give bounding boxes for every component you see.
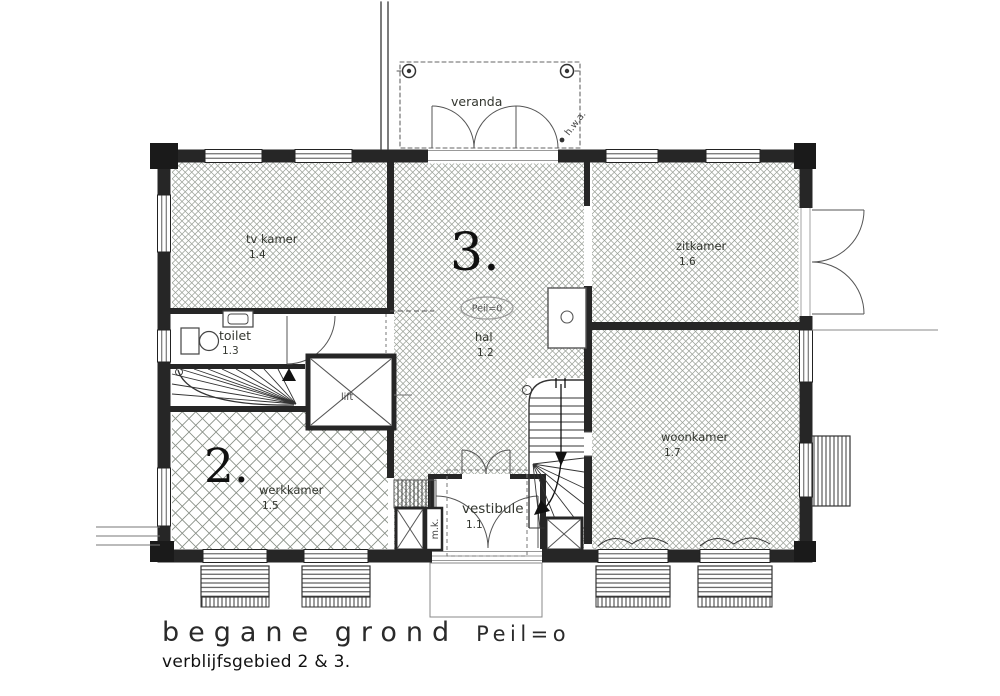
shaft-closet-left	[396, 508, 424, 550]
svg-text:1.7: 1.7	[664, 447, 681, 459]
window	[295, 150, 352, 163]
window	[800, 330, 813, 382]
entrance-stoop	[430, 563, 542, 617]
window	[598, 550, 668, 563]
window	[304, 550, 368, 563]
window	[158, 330, 171, 362]
flue-circle	[561, 311, 573, 323]
svg-text:1.2: 1.2	[477, 347, 494, 359]
peil-label: Peil=0	[472, 304, 503, 315]
exterior-chimney	[812, 436, 850, 506]
svg-text:1.1: 1.1	[466, 519, 483, 531]
veranda-label: veranda	[451, 94, 502, 109]
lift-label: lift	[341, 392, 353, 403]
wall-zitkamer-woonkamer	[592, 322, 800, 330]
caption-title: begane grond	[162, 617, 458, 648]
svg-text:werkkamer: werkkamer	[259, 483, 324, 497]
area-number-3: 3.	[450, 223, 500, 283]
shaft-closet-right	[546, 518, 582, 550]
caption-subtitle: verblijfsgebied 2 & 3.	[162, 652, 570, 672]
veranda: veranda h.w.a.	[381, 2, 588, 149]
svg-text:vestibule: vestibule	[462, 501, 524, 517]
svg-text:1.4: 1.4	[249, 249, 266, 261]
wall-hal-west	[387, 430, 394, 478]
wall-toilet-stair	[170, 364, 305, 369]
window	[158, 468, 171, 526]
window	[706, 150, 760, 163]
area-number-2: 2.	[204, 439, 249, 494]
hwa-label: h.w.a.	[563, 109, 589, 138]
floor-plan-drawing: veranda h.w.a.	[0, 0, 1000, 696]
svg-text:1.3: 1.3	[222, 345, 239, 357]
fireplace-niche	[548, 288, 586, 348]
wall-tvkamer-hal	[387, 162, 394, 308]
window	[800, 443, 813, 497]
wall-hal-woonkamer-lower	[584, 456, 592, 544]
window	[700, 550, 770, 563]
svg-text:1.6: 1.6	[679, 256, 696, 268]
floorplan-page: veranda h.w.a.	[0, 0, 1000, 696]
toilet-bowl	[200, 332, 219, 351]
window-well	[201, 566, 269, 607]
lift-shaft: lift	[308, 356, 412, 428]
hwa-drain-dot	[560, 138, 565, 143]
veranda-doors	[432, 106, 558, 148]
svg-text:tv kamer: tv kamer	[246, 232, 298, 246]
veranda-post-right	[561, 65, 580, 78]
window-well	[302, 566, 370, 607]
meter-closet: m.k.	[426, 508, 442, 550]
window	[606, 150, 658, 163]
mk-label: m.k.	[430, 519, 441, 540]
svg-text:toilet: toilet	[219, 328, 251, 343]
window-well	[596, 566, 670, 607]
zitkamer-french-doors	[812, 210, 864, 314]
toilet-fixture	[181, 328, 199, 354]
wall-stair-werkkamer	[170, 406, 308, 412]
wall-hal-zitkamer-stub	[584, 162, 590, 206]
window-well	[698, 566, 772, 607]
window	[203, 550, 267, 563]
wall-tvkamer-toilet	[170, 308, 394, 314]
grille	[394, 480, 436, 508]
svg-text:woonkamer: woonkamer	[661, 430, 729, 444]
svg-text:hal: hal	[475, 330, 493, 344]
window	[158, 195, 171, 252]
drawing-caption: begane grond Peil=o verblijfsgebied 2 & …	[162, 617, 570, 672]
svg-text:zitkamer: zitkamer	[676, 239, 727, 253]
door-jambs-hal-woonkamer	[584, 432, 592, 456]
svg-text:1.5: 1.5	[262, 500, 279, 512]
window	[205, 150, 262, 163]
caption-level: Peil=o	[476, 622, 570, 646]
